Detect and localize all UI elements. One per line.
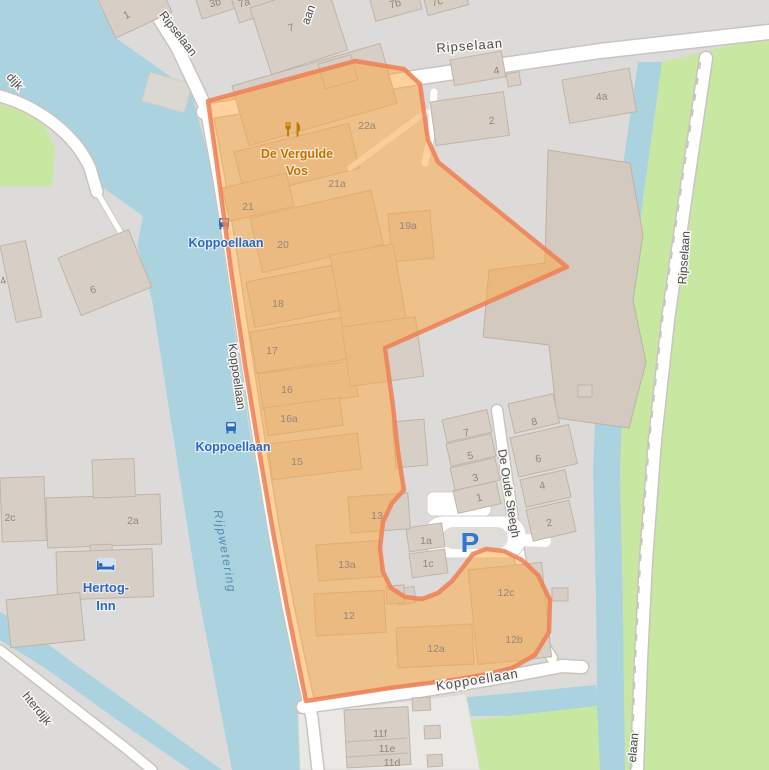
map-canvas[interactable]: Ripselaan Ripselaan Ripselaan elaan aan … xyxy=(0,0,769,770)
housenumber: 11f xyxy=(373,728,387,740)
housenumber: 11e xyxy=(379,743,396,755)
parking-icon[interactable]: P xyxy=(461,527,480,558)
housenumber: 1c xyxy=(422,558,433,570)
housenumber: 20 xyxy=(277,239,289,251)
street-label-elaan-fragment: elaan xyxy=(625,732,642,762)
housenumber: 11d xyxy=(384,757,401,769)
housenumber: 21a xyxy=(328,178,346,190)
restaurant-name-line1: De Vergulde xyxy=(261,147,333,161)
housenumber: 21 xyxy=(242,201,254,213)
housenumber: 17 xyxy=(266,345,278,357)
housenumber: 18 xyxy=(272,298,284,310)
hotel-name-line1: Hertog- xyxy=(83,580,129,595)
housenumber: 12a xyxy=(427,643,445,655)
housenumber: 13a xyxy=(338,559,356,571)
restaurant-name-line2: Vos xyxy=(286,164,308,178)
hotel-icon[interactable] xyxy=(96,558,116,572)
housenumber: 1a xyxy=(420,535,432,547)
housenumber: 22a xyxy=(358,120,376,132)
housenumber: 2c xyxy=(4,512,15,524)
housenumber: 16 xyxy=(281,384,293,396)
housenumber: 12b xyxy=(505,634,523,646)
hotel-name-line2: Inn xyxy=(96,598,116,613)
housenumber: 13 xyxy=(371,510,383,522)
housenumber: 2a xyxy=(127,515,139,527)
housenumber: 4a xyxy=(595,90,608,103)
housenumber: 15 xyxy=(291,456,303,468)
bus-stop-label: Koppoellaan xyxy=(195,440,270,454)
housenumber: 16a xyxy=(280,413,298,425)
bus-stop-label: Koppoellaan xyxy=(188,236,263,250)
map-viewport[interactable]: Ripselaan Ripselaan Ripselaan elaan aan … xyxy=(0,0,769,770)
housenumber: 19a xyxy=(399,220,417,232)
housenumber: 12 xyxy=(343,610,355,622)
housenumber: 12c xyxy=(498,587,515,599)
